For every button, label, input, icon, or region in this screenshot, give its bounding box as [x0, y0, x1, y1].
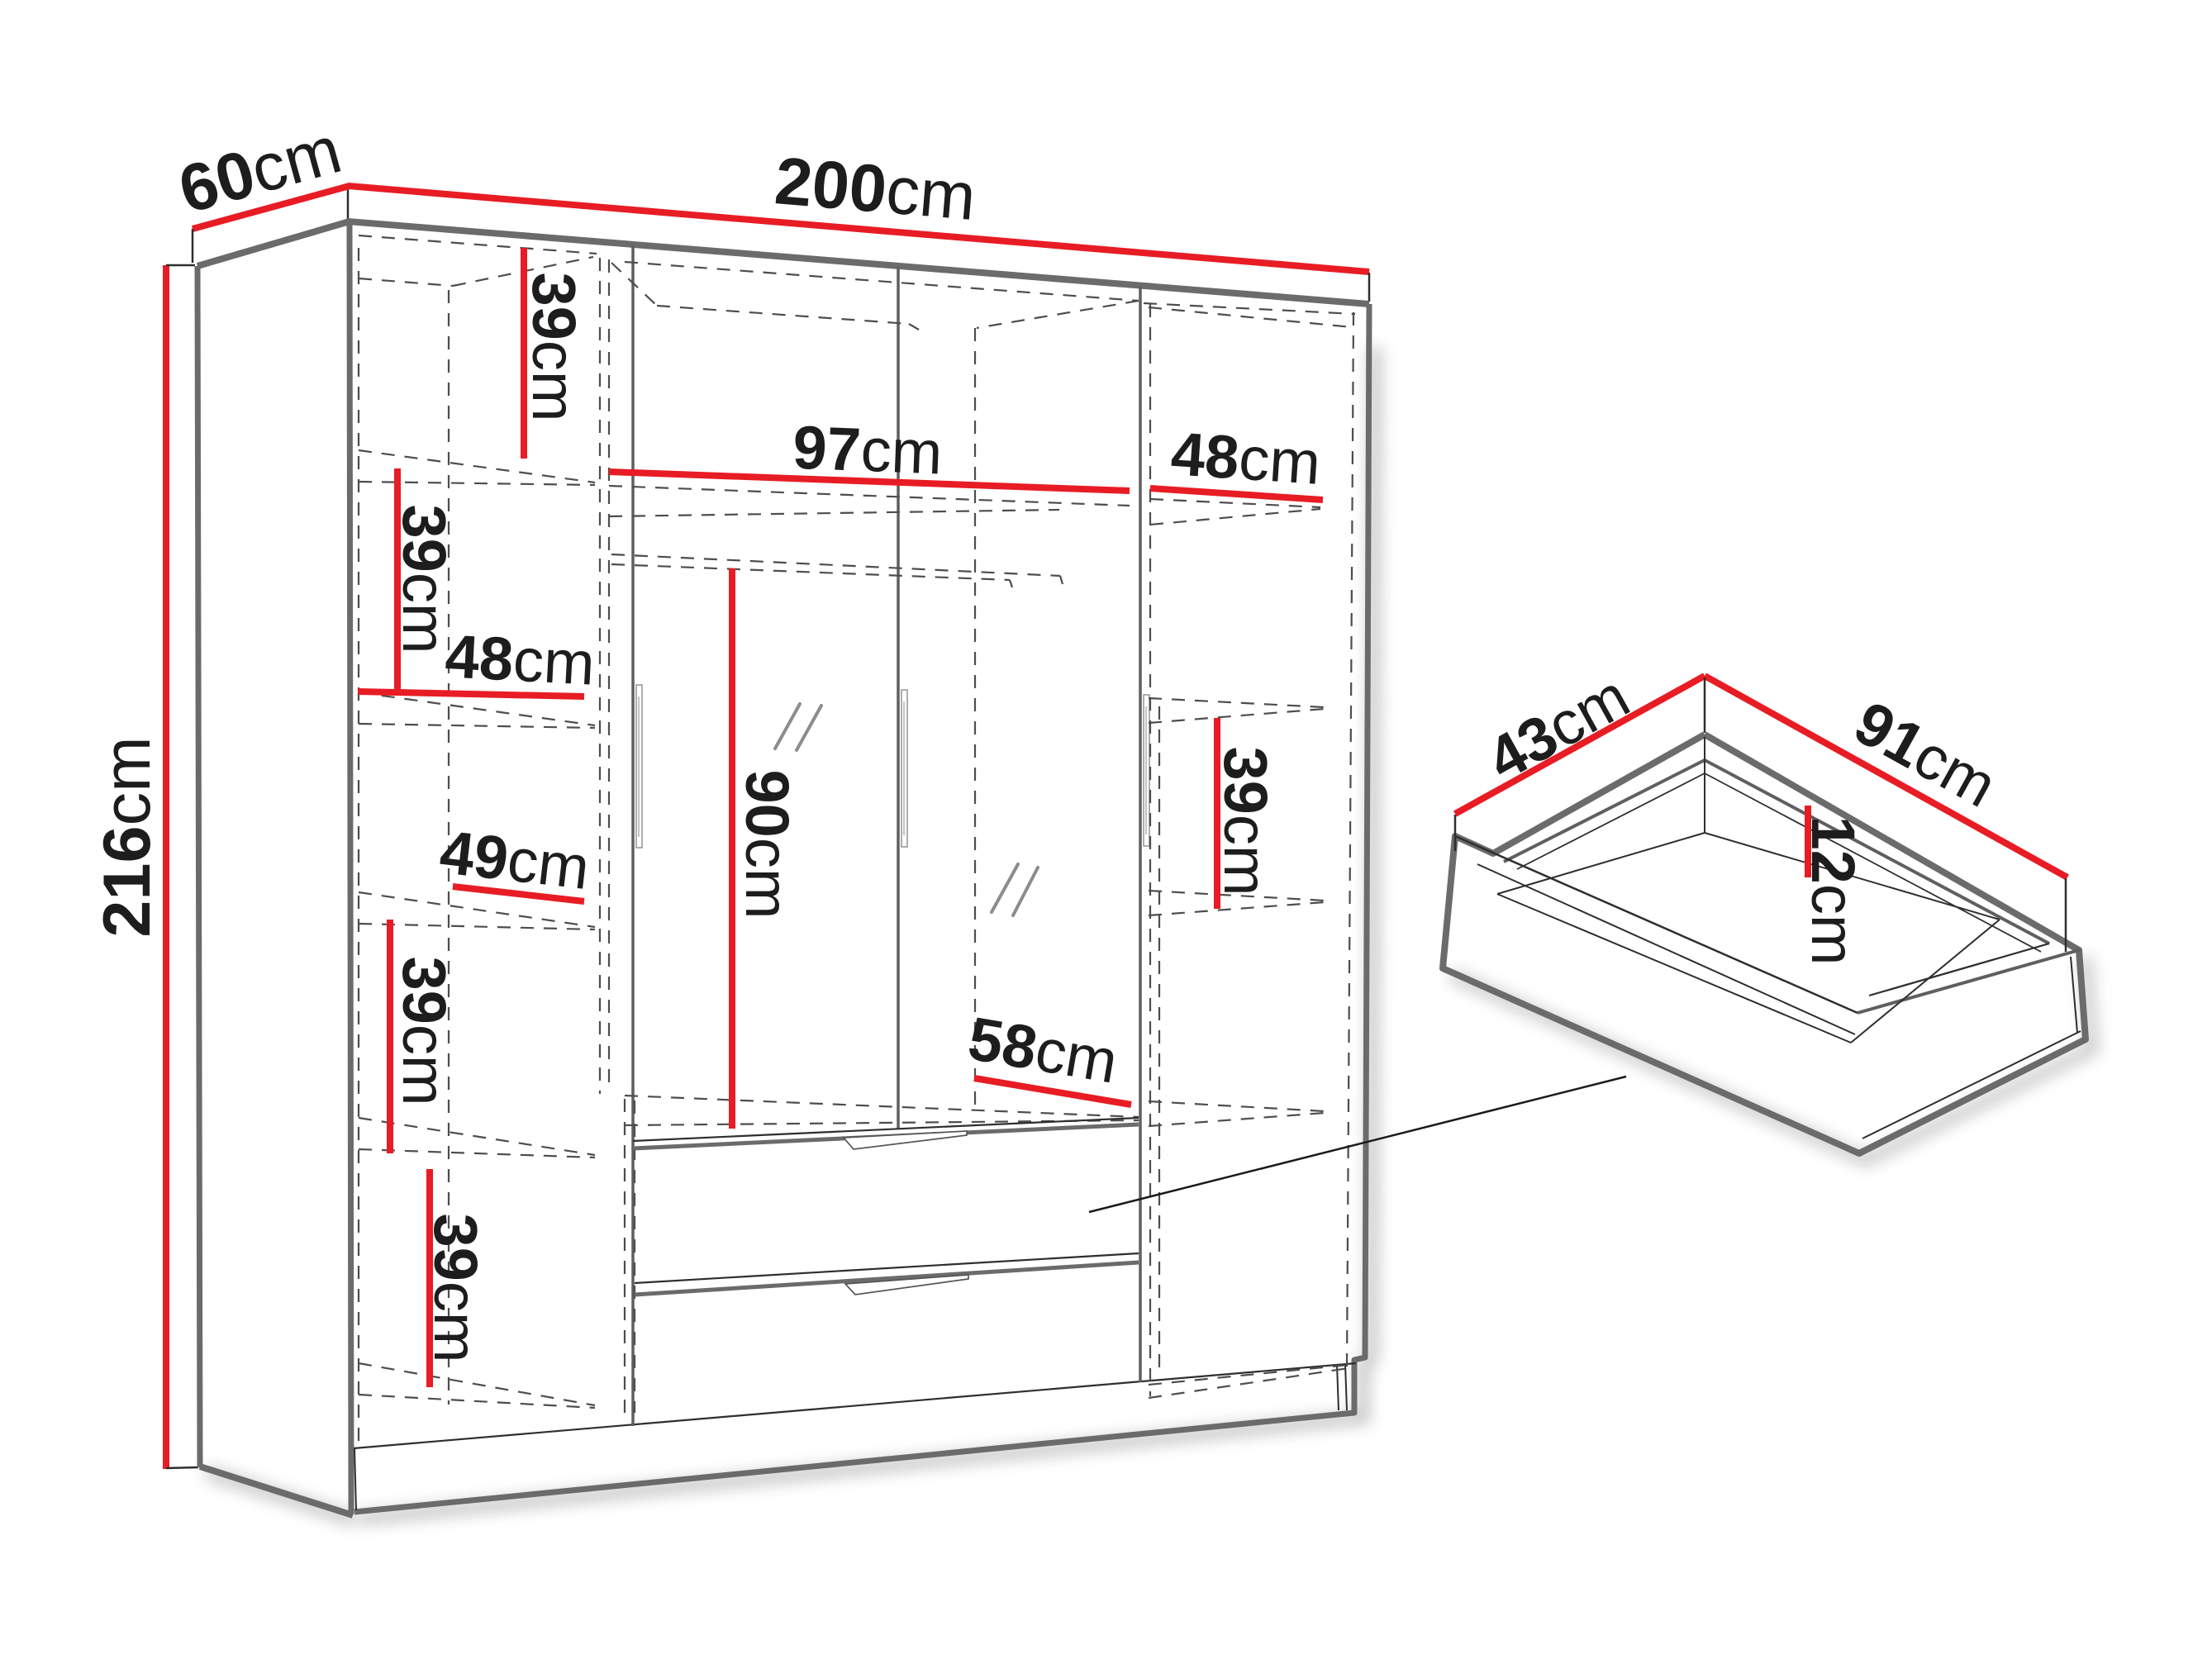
- svg-text:90cm: 90cm: [733, 770, 802, 920]
- svg-text:39cm: 39cm: [1211, 747, 1280, 896]
- svg-text:39cm: 39cm: [421, 1214, 490, 1363]
- svg-text:48cm: 48cm: [1169, 419, 1323, 497]
- svg-text:48cm: 48cm: [444, 621, 597, 697]
- svg-text:39cm: 39cm: [390, 957, 459, 1106]
- svg-text:39cm: 39cm: [520, 273, 588, 422]
- svg-text:12cm: 12cm: [1799, 816, 1867, 966]
- svg-text:216cm: 216cm: [90, 736, 164, 937]
- svg-text:97cm: 97cm: [792, 413, 944, 487]
